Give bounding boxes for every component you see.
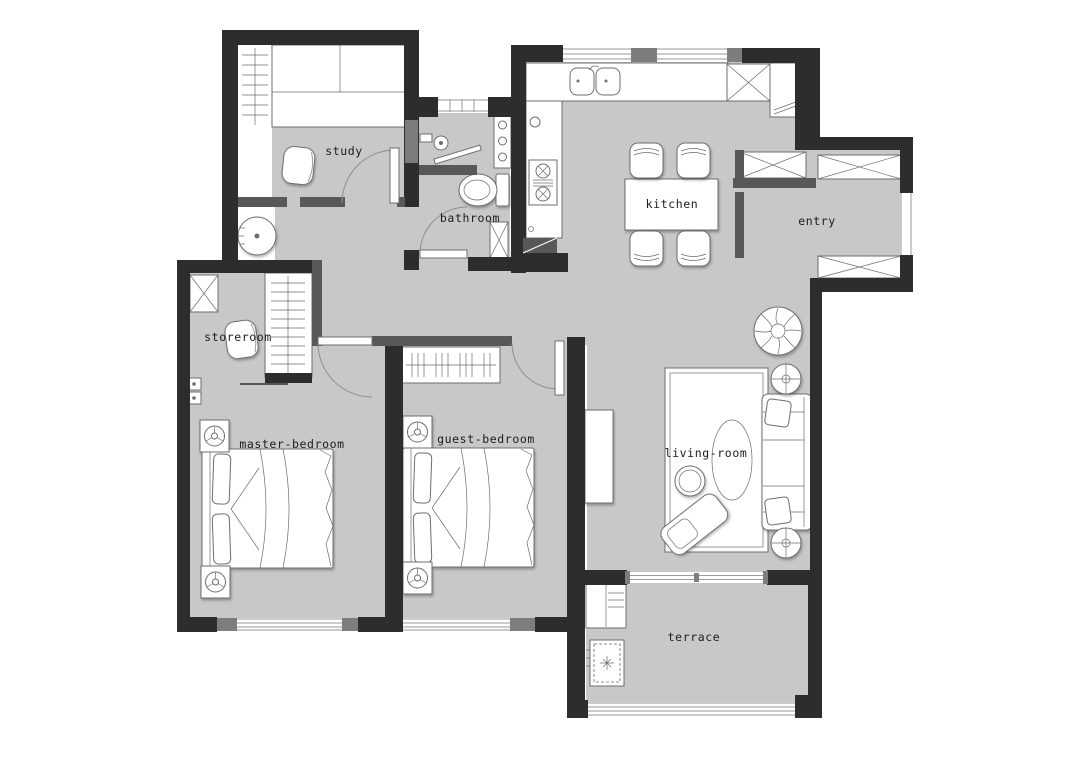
- dining-chair-icon: [630, 143, 663, 178]
- double-bed-icon: [403, 448, 534, 567]
- master-bedroom-label: master-bedroom: [239, 437, 344, 451]
- floor-plan: study bathroom kitchen entry storeroom m…: [0, 0, 1080, 764]
- entry-door-opening: [900, 193, 913, 255]
- storeroom-label: storeroom: [204, 330, 272, 344]
- nightstand-lamp-icon: [403, 562, 432, 594]
- tv-console-icon: [585, 410, 613, 503]
- kitchen-corner-cabinet-dark: [523, 238, 557, 253]
- bathroom-shelf-icon: [494, 112, 511, 168]
- bathroom-label: bathroom: [440, 211, 500, 225]
- master-bedroom-window-icon: [237, 618, 342, 631]
- fridge-cabinet-icon: [727, 64, 770, 101]
- living-room-label: living-room: [665, 446, 748, 460]
- dining-chair-icon: [677, 143, 710, 178]
- laundry-cabinet-icon: [586, 583, 626, 628]
- coffee-table-icon: [675, 466, 705, 496]
- nightstand-lamp-icon: [201, 566, 230, 598]
- terrace-label: terrace: [668, 630, 721, 644]
- shoe-cabinet-x-icon: [190, 275, 218, 312]
- round-table-icon: [238, 217, 276, 255]
- terrace-window-icon: [588, 702, 795, 716]
- nightstand-lamp-icon: [403, 416, 432, 448]
- side-table-icon: [771, 364, 801, 394]
- double-bed-icon: [202, 449, 333, 568]
- floor-plan-page: study bathroom kitchen entry storeroom m…: [0, 0, 1080, 764]
- dining-chair-icon: [677, 231, 710, 266]
- storeroom-wardrobe-hangers-icon: [265, 273, 312, 377]
- toilet-icon: [459, 174, 509, 206]
- desk-icon: [272, 45, 407, 127]
- washbasin-cabinet-icon: [490, 222, 508, 258]
- side-table-icon: [771, 528, 801, 558]
- kitchen-counter-top: [526, 63, 728, 101]
- guest-bedroom-window-icon: [403, 618, 510, 631]
- sofa-icon: [762, 394, 812, 530]
- nightstand-lamp-icon: [200, 420, 229, 452]
- study-label: study: [325, 144, 363, 158]
- guest-wardrobe-hangers-icon: [402, 347, 500, 383]
- entry-label: entry: [798, 214, 836, 228]
- dining-chair-icon: [630, 231, 663, 266]
- terrace-sliding-door-icon: [625, 571, 768, 584]
- plant-icon: [754, 307, 802, 355]
- desk-chair-icon: [281, 146, 316, 186]
- kitchen-label: kitchen: [646, 197, 699, 211]
- washing-machine-icon: [586, 640, 624, 686]
- stove-icon: [529, 160, 557, 205]
- guest-bedroom-label: guest-bedroom: [437, 432, 535, 446]
- bathroom-window-icon: [438, 99, 488, 112]
